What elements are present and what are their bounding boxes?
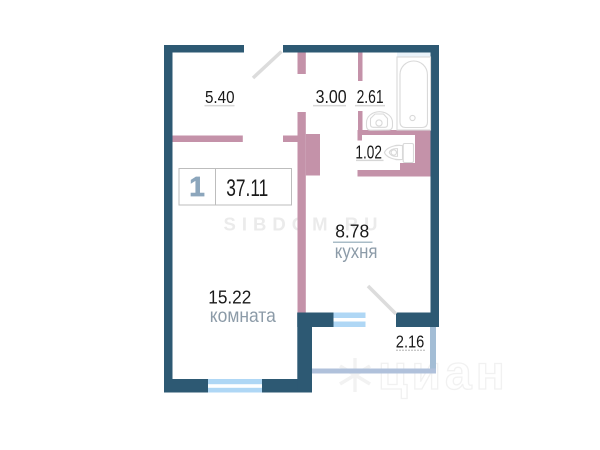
svg-text:8.78: 8.78 [335,221,369,241]
svg-text:1: 1 [189,171,205,202]
svg-text:2.16: 2.16 [396,331,425,351]
svg-text:5.40: 5.40 [205,87,235,107]
svg-text:3.00: 3.00 [316,87,347,107]
svg-text:кухня: кухня [335,241,378,263]
svg-text:2.61: 2.61 [357,87,384,107]
svg-text:комната: комната [210,305,276,327]
svg-text:37.11: 37.11 [226,175,268,202]
svg-text:1.02: 1.02 [355,143,382,163]
